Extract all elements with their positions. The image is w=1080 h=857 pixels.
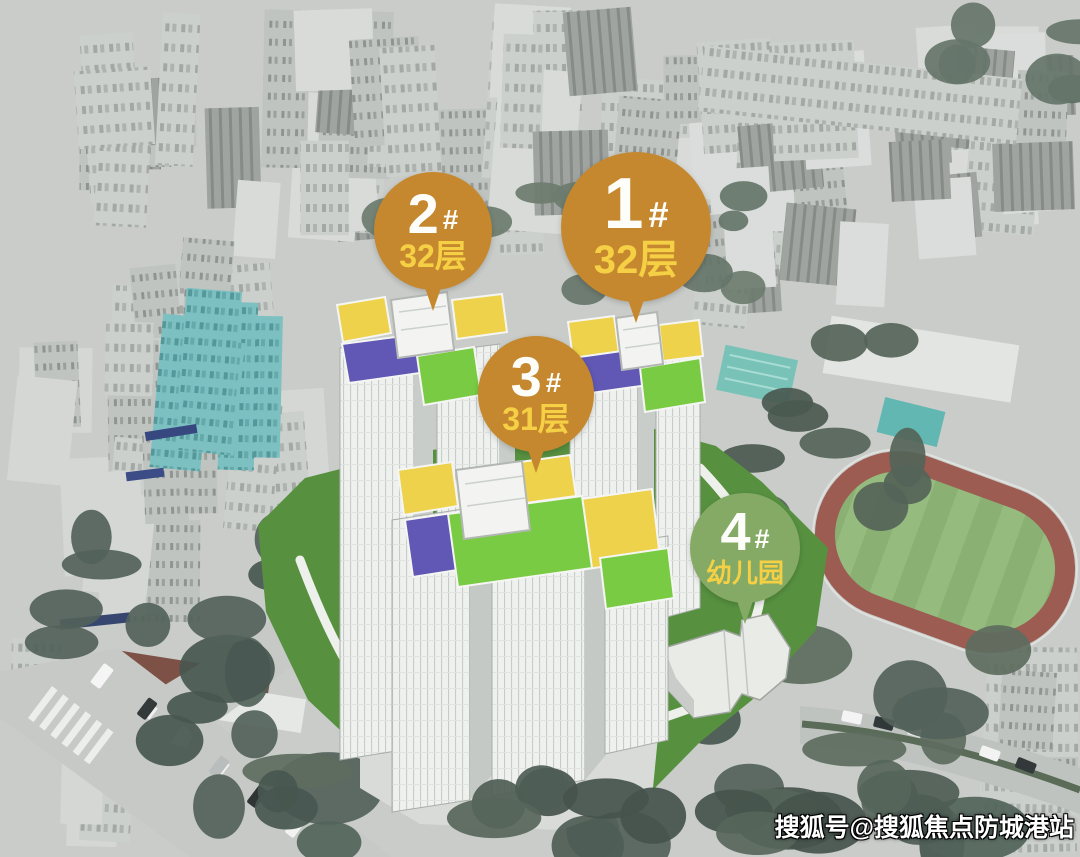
building-marker-1: 1# 32层 [561, 152, 711, 302]
marker-subtitle: 幼儿园 [706, 560, 784, 587]
marker-tail [527, 447, 545, 473]
marker-number-row: 3# [511, 352, 562, 401]
marker-number: 3 [511, 352, 542, 401]
marker-subtitle: 32层 [399, 240, 467, 274]
marker-hash: # [751, 528, 770, 557]
marker-number-row: 4# [720, 509, 769, 557]
building-marker-4: 4# 幼儿园 [690, 493, 800, 603]
marker-tail [627, 297, 645, 323]
marker-subtitle: 31层 [502, 403, 570, 437]
building-marker-3: 3# 31层 [478, 336, 594, 452]
marker-hash: # [439, 208, 459, 238]
marker-subtitle: 32层 [594, 239, 679, 281]
marker-hash: # [542, 371, 562, 401]
marker-tail [736, 598, 754, 624]
marker-number: 1 [603, 173, 643, 236]
marker-number: 2 [408, 189, 439, 238]
building-marker-2: 2# 32层 [374, 172, 492, 290]
marker-hash: # [644, 199, 669, 237]
aerial-site-plan: 2# 32层 1# 32层 3# 31层 4# 幼儿园 搜狐号@搜狐焦点防城港站 [0, 0, 1080, 857]
marker-number-row: 2# [408, 189, 459, 238]
marker-tail [424, 285, 442, 311]
watermark: 搜狐号@搜狐焦点防城港站 [775, 808, 1074, 844]
marker-number-row: 1# [603, 173, 668, 236]
marker-number: 4 [720, 509, 750, 557]
